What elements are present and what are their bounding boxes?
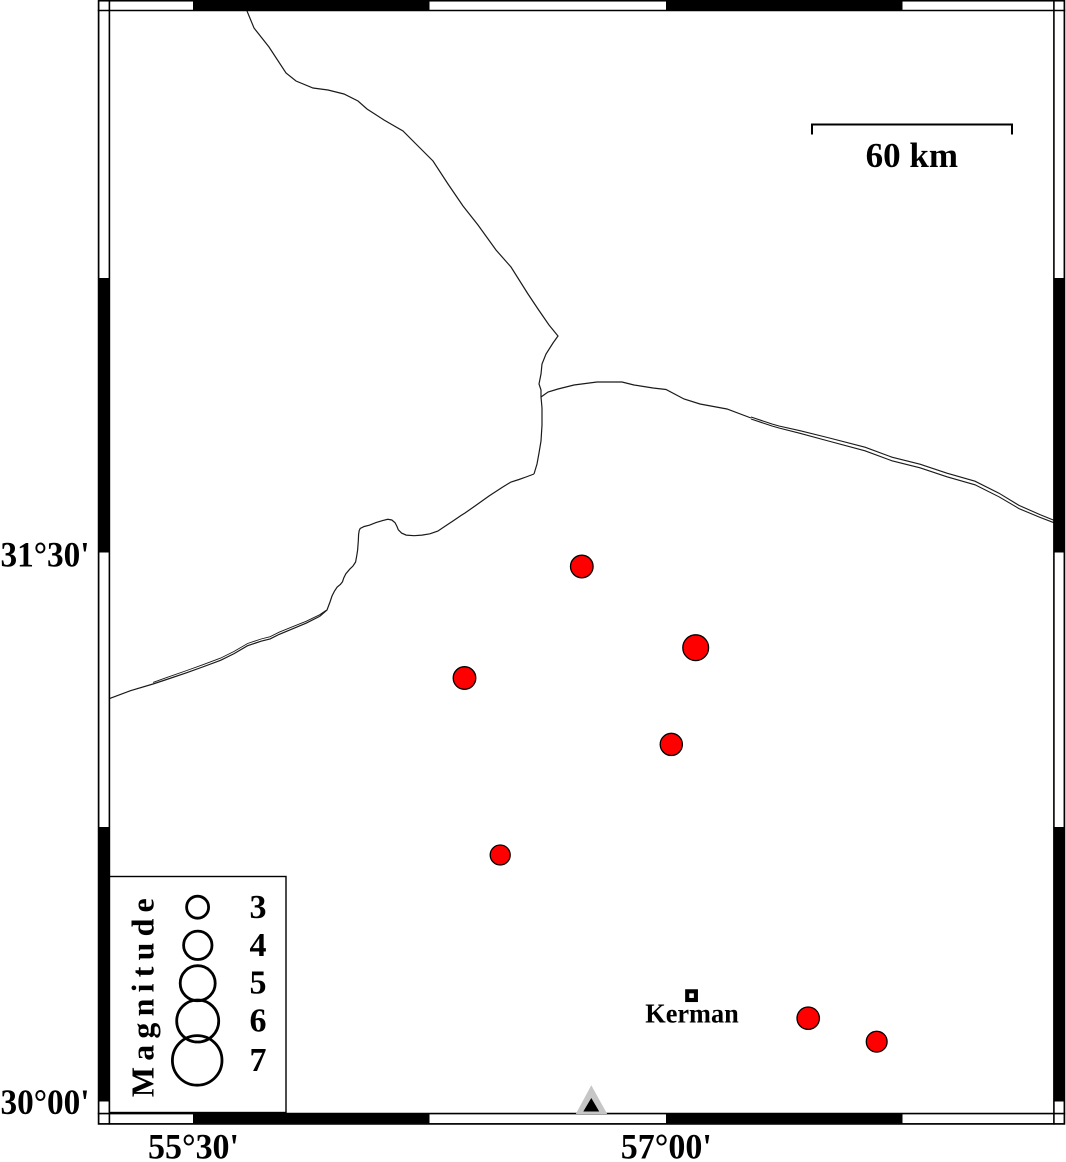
svg-text:55°30': 55°30' [148, 1127, 239, 1162]
svg-text:31°30': 31°30' [1, 535, 90, 575]
svg-text:6: 6 [250, 1002, 267, 1039]
svg-text:7: 7 [250, 1042, 267, 1079]
svg-text:4: 4 [250, 927, 267, 964]
svg-text:3: 3 [250, 889, 267, 926]
svg-text:5: 5 [250, 965, 267, 1002]
svg-text:Magnitude: Magnitude [125, 892, 161, 1097]
svg-text:57°00': 57°00' [621, 1127, 712, 1162]
svg-text:30°00': 30°00' [1, 1082, 90, 1122]
svg-text:Kerman: Kerman [645, 998, 739, 1028]
svg-text:60 km: 60 km [866, 136, 958, 175]
